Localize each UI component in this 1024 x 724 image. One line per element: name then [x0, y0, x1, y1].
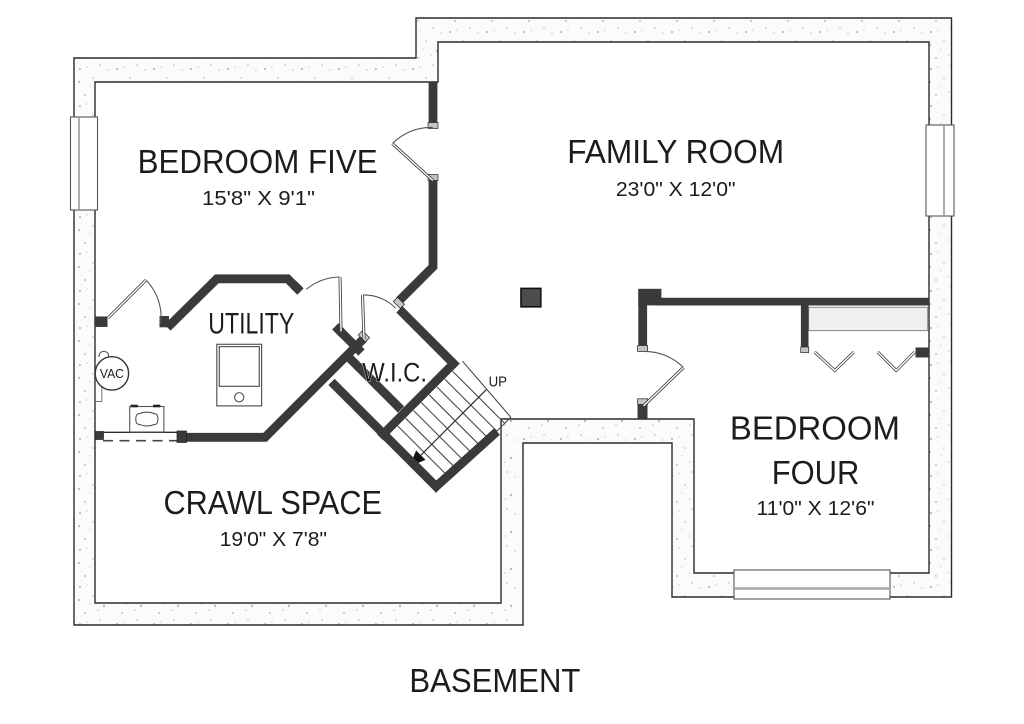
- svg-text:23'0" X 12'0": 23'0" X 12'0": [616, 179, 736, 201]
- svg-text:BEDROOM: BEDROOM: [730, 409, 900, 446]
- svg-text:BASEMENT: BASEMENT: [409, 662, 580, 699]
- svg-text:FOUR: FOUR: [772, 454, 860, 491]
- svg-text:UP: UP: [489, 373, 507, 390]
- svg-text:CRAWL SPACE: CRAWL SPACE: [163, 484, 382, 521]
- svg-text:UTILITY: UTILITY: [208, 307, 294, 340]
- svg-text:VAC: VAC: [100, 367, 124, 381]
- svg-text:FAMILY ROOM: FAMILY ROOM: [567, 133, 784, 170]
- svg-text:15'8" X 9'1": 15'8" X 9'1": [202, 188, 315, 210]
- svg-text:BEDROOM FIVE: BEDROOM FIVE: [138, 143, 378, 180]
- svg-text:W.I.C.: W.I.C.: [362, 357, 427, 387]
- svg-text:11'0" X 12'6": 11'0" X 12'6": [757, 498, 875, 520]
- svg-text:19'0" X 7'8": 19'0" X 7'8": [220, 529, 327, 551]
